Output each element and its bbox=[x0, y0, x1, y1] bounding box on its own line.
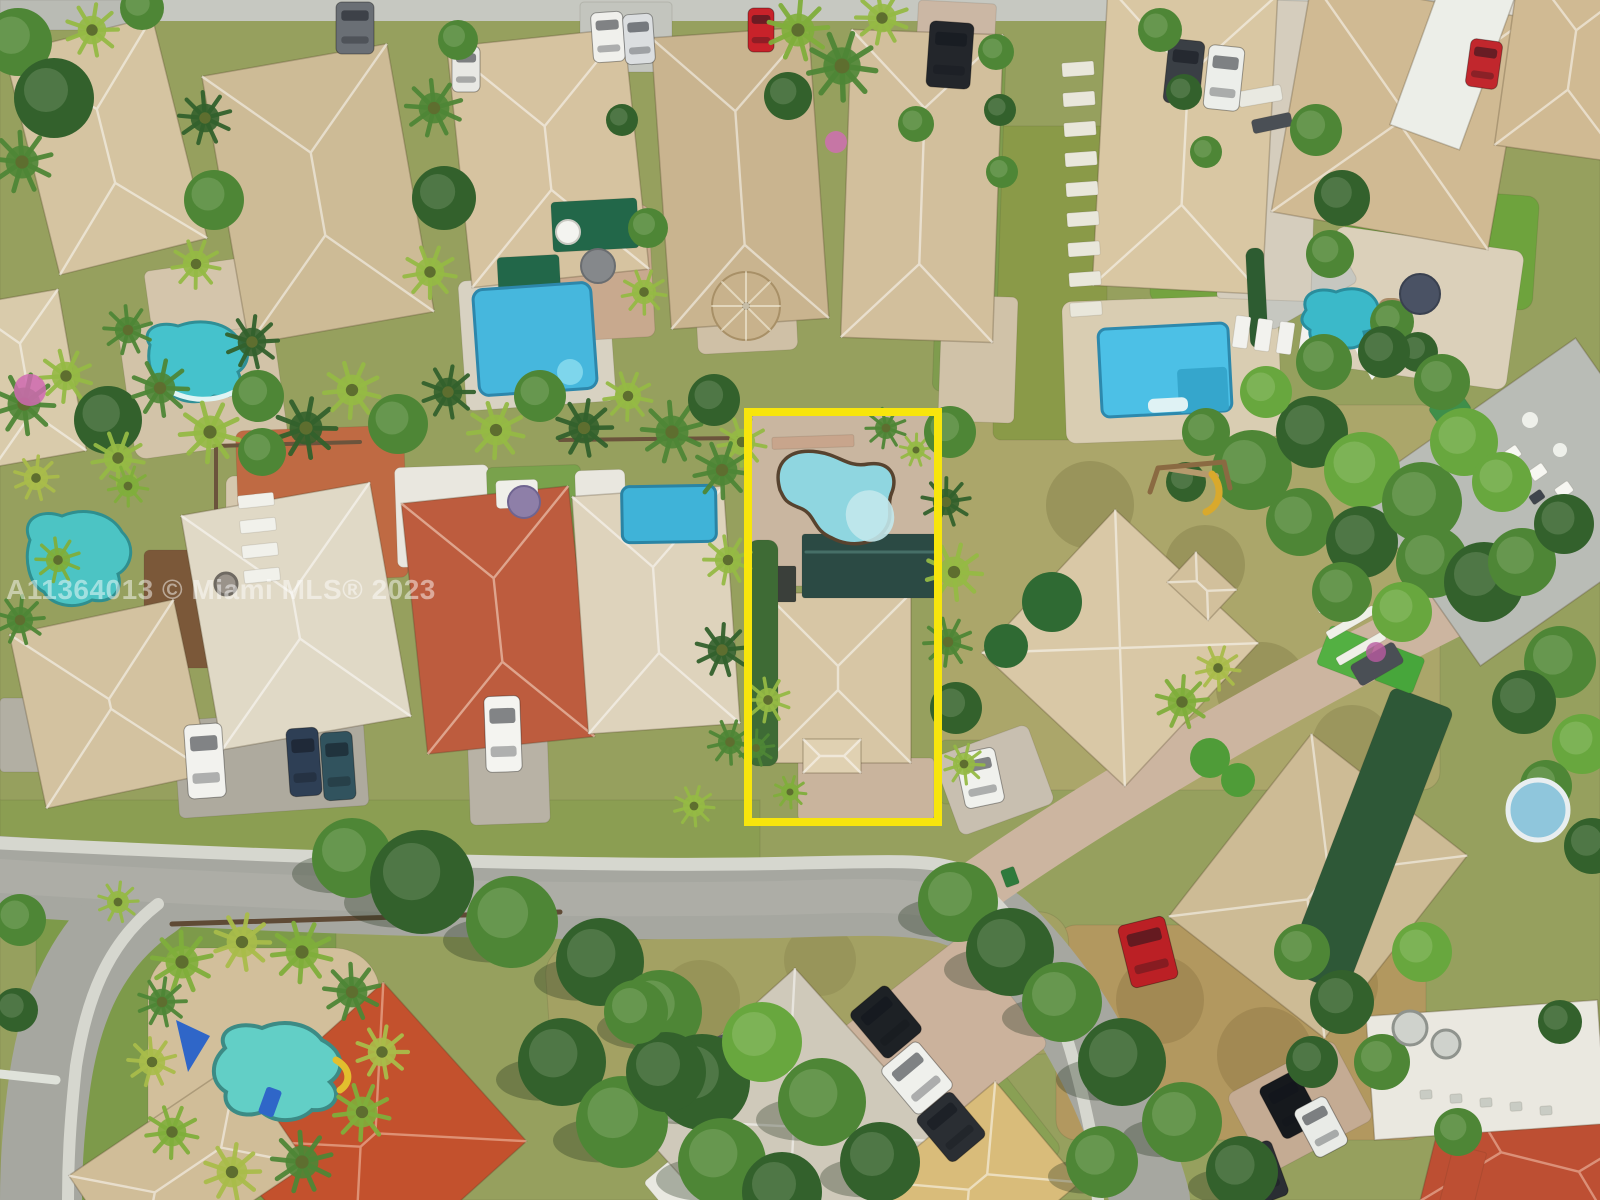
tree-hl-85 bbox=[1480, 460, 1513, 493]
tree-center-123 bbox=[226, 1166, 238, 1178]
tree-hl-14 bbox=[610, 108, 628, 126]
car-12 bbox=[484, 695, 523, 772]
tree-center-2 bbox=[15, 155, 28, 168]
tree-hl-94 bbox=[1560, 722, 1593, 755]
tree-hl-27 bbox=[1321, 177, 1352, 208]
tree-center-125 bbox=[147, 1057, 158, 1068]
paver-detail-6-4 bbox=[1540, 1106, 1553, 1116]
paver-detail-0-4 bbox=[1066, 181, 1099, 197]
tree-center-13 bbox=[639, 287, 649, 297]
tree-hl-105 bbox=[732, 1012, 776, 1056]
paver-detail-0-0 bbox=[1062, 61, 1095, 77]
car-2 bbox=[590, 11, 625, 63]
tree-hl-33 bbox=[83, 395, 120, 432]
tree-center-43 bbox=[578, 422, 590, 434]
detail-9 bbox=[215, 573, 237, 595]
tree-center-50 bbox=[112, 452, 123, 463]
tree-center-8 bbox=[428, 102, 440, 114]
car-10 bbox=[286, 727, 323, 797]
tree-hl-21 bbox=[988, 98, 1006, 116]
tree-hl-23 bbox=[1144, 14, 1168, 38]
tree-hl-114 bbox=[689, 1129, 737, 1177]
tree-center-67 bbox=[941, 497, 952, 508]
tree-center-40 bbox=[442, 386, 453, 397]
tree-hl-131 bbox=[1318, 978, 1353, 1013]
tree-hl-102 bbox=[529, 1029, 577, 1077]
tree-hl-103 bbox=[588, 1088, 639, 1139]
tree-hl-29 bbox=[1376, 306, 1400, 330]
paver-detail-0-7 bbox=[1069, 271, 1102, 287]
detail-4 bbox=[1508, 780, 1568, 840]
detail-6 bbox=[1432, 1030, 1460, 1058]
detail-12 bbox=[1022, 572, 1082, 632]
tree-hl-84 bbox=[1542, 502, 1575, 535]
mark-1 bbox=[712, 272, 780, 340]
tree-hl-86 bbox=[1421, 361, 1452, 392]
tree-center-68 bbox=[948, 566, 960, 578]
paver-detail-0-5 bbox=[1067, 211, 1100, 227]
tree-hl-79 bbox=[1405, 535, 1445, 575]
car-0 bbox=[336, 2, 374, 54]
tree-hl-42 bbox=[521, 377, 550, 406]
tree-center-65 bbox=[690, 802, 699, 811]
tree-center-120 bbox=[376, 1046, 387, 1057]
tree-hl-127 bbox=[1, 901, 30, 930]
tree-hl-108 bbox=[928, 872, 972, 916]
tree-hl-137 bbox=[1544, 1006, 1568, 1030]
tree-hl-22 bbox=[990, 160, 1008, 178]
tree-center-117 bbox=[236, 936, 248, 948]
detail-0 bbox=[581, 249, 615, 283]
tree-center-35 bbox=[203, 425, 216, 438]
paver-detail-6-1 bbox=[1450, 1094, 1463, 1104]
structure-4 bbox=[748, 540, 778, 766]
paved-32 bbox=[772, 435, 854, 450]
tree-hl-78 bbox=[1439, 417, 1476, 454]
tree-hl-140 bbox=[636, 1042, 680, 1086]
tree-hl-1 bbox=[24, 68, 68, 112]
tree-center-121 bbox=[356, 1106, 368, 1118]
tree-center-38 bbox=[346, 384, 358, 396]
detail-11 bbox=[1553, 443, 1567, 457]
tree-hl-9 bbox=[420, 174, 455, 209]
tree-center-49 bbox=[246, 336, 257, 347]
tree-center-32 bbox=[60, 370, 71, 381]
tree-hl-113 bbox=[1215, 1145, 1255, 1185]
tree-center-139 bbox=[1213, 663, 1223, 673]
tree-center-58 bbox=[716, 644, 727, 655]
house-4 bbox=[841, 29, 1004, 342]
detail-16 bbox=[14, 374, 46, 406]
detail-13 bbox=[984, 624, 1028, 668]
car-3 bbox=[622, 13, 655, 65]
tree-hl-100 bbox=[567, 929, 615, 977]
tree-center-44 bbox=[623, 391, 634, 402]
detail-15 bbox=[1221, 763, 1255, 797]
tree-center-56 bbox=[716, 464, 728, 476]
tree-center-116 bbox=[175, 955, 188, 968]
tree-hl-83 bbox=[1497, 537, 1534, 574]
tree-hl-87 bbox=[1365, 333, 1394, 362]
car-7 bbox=[1203, 44, 1245, 111]
tree-center-10 bbox=[424, 266, 435, 277]
tree-center-34 bbox=[154, 382, 166, 394]
tree-center-55 bbox=[15, 615, 26, 626]
tree-hl-89 bbox=[1247, 373, 1276, 402]
tree-center-17 bbox=[876, 12, 887, 23]
mark-0 bbox=[0, 1074, 56, 1080]
pool-11 bbox=[622, 485, 717, 543]
tree-hl-81 bbox=[1380, 590, 1413, 623]
detail-5 bbox=[1393, 1011, 1427, 1045]
car-8 bbox=[1465, 38, 1503, 90]
tree-hl-75 bbox=[1275, 497, 1312, 534]
tree-hl-11 bbox=[443, 25, 465, 47]
tree-center-60 bbox=[763, 695, 773, 705]
tree-center-122 bbox=[295, 1155, 308, 1168]
tree-center-69 bbox=[943, 637, 954, 648]
tree-hl-92 bbox=[1533, 635, 1573, 675]
tree-hl-132 bbox=[1281, 931, 1312, 962]
tree-hl-128 bbox=[0, 994, 24, 1018]
tree-hl-141 bbox=[612, 988, 647, 1023]
tree-hl-36 bbox=[239, 377, 268, 406]
paver-detail-0-6 bbox=[1068, 241, 1101, 257]
tree-center-57 bbox=[723, 555, 734, 566]
tree-hl-134 bbox=[1361, 1041, 1392, 1072]
pool-6 bbox=[1148, 397, 1189, 413]
detail-1 bbox=[556, 220, 580, 244]
house-25 bbox=[9, 599, 210, 808]
tree-hl-93 bbox=[1500, 678, 1535, 713]
tree-hl-99 bbox=[478, 888, 529, 939]
tree-center-45 bbox=[665, 425, 678, 438]
tree-hl-46 bbox=[695, 381, 724, 410]
tree-hl-28 bbox=[1312, 236, 1338, 262]
aerial-photo-scene bbox=[0, 0, 1600, 1200]
tree-center-126 bbox=[157, 997, 168, 1008]
car-4 bbox=[748, 8, 774, 52]
tree-center-118 bbox=[295, 945, 308, 958]
structure-2 bbox=[802, 534, 938, 598]
tree-hl-97 bbox=[322, 828, 366, 872]
tree-hl-19 bbox=[903, 111, 923, 131]
tree-center-41 bbox=[490, 424, 502, 436]
tree-hl-6 bbox=[192, 178, 225, 211]
house-12 bbox=[765, 593, 911, 763]
tree-hl-130 bbox=[1075, 1135, 1115, 1175]
tree-center-52 bbox=[31, 473, 41, 483]
paver-detail-6-3 bbox=[1510, 1102, 1523, 1112]
tree-hl-24 bbox=[1171, 79, 1191, 99]
tree-hl-77 bbox=[1392, 472, 1436, 516]
tree-hl-74 bbox=[1334, 442, 1376, 484]
tree-hl-51 bbox=[244, 434, 270, 460]
tree-hl-39 bbox=[376, 402, 409, 435]
tree-center-64 bbox=[912, 446, 919, 453]
tree-hl-135 bbox=[1293, 1043, 1322, 1072]
tree-center-53 bbox=[124, 482, 133, 491]
tree-hl-109 bbox=[977, 919, 1025, 967]
tree-hl-76 bbox=[1335, 515, 1375, 555]
tree-hl-26 bbox=[1297, 111, 1326, 140]
detail-18 bbox=[1366, 642, 1386, 662]
tree-center-63 bbox=[882, 424, 891, 433]
tree-center-7 bbox=[191, 259, 202, 270]
tree-center-5 bbox=[199, 112, 210, 123]
tree-center-37 bbox=[299, 421, 312, 434]
tree-center-3 bbox=[86, 24, 97, 35]
tree-hl-20 bbox=[983, 39, 1003, 59]
car-9 bbox=[183, 723, 226, 799]
detail-10 bbox=[1522, 412, 1538, 428]
tree-hl-12 bbox=[633, 213, 655, 235]
tree-hl-82 bbox=[1320, 570, 1353, 603]
tree-hl-110 bbox=[1032, 972, 1076, 1016]
tree-hl-107 bbox=[850, 1132, 894, 1176]
car-11 bbox=[320, 731, 357, 801]
paver-detail-0-3 bbox=[1065, 151, 1098, 167]
tree-center-124 bbox=[166, 1126, 177, 1137]
tree-hl-18 bbox=[770, 78, 796, 104]
tree-center-71 bbox=[960, 760, 969, 769]
tree-center-48 bbox=[123, 325, 134, 336]
aerial-listing-photo: A11364013 © Miami MLS® 2023 bbox=[0, 0, 1600, 1200]
tree-hl-25 bbox=[1194, 140, 1212, 158]
tree-hl-136 bbox=[1440, 1114, 1466, 1140]
tree-hl-106 bbox=[789, 1069, 837, 1117]
tree-hl-90 bbox=[1188, 414, 1214, 440]
house-9 bbox=[181, 482, 411, 750]
tree-center-54 bbox=[53, 555, 63, 565]
tree-center-119 bbox=[346, 986, 358, 998]
tree-center-16 bbox=[835, 59, 850, 74]
paver-detail-0-1 bbox=[1063, 91, 1096, 107]
tree-center-59 bbox=[725, 737, 735, 747]
tree-hl-111 bbox=[1089, 1029, 1137, 1077]
paver-detail-0-2 bbox=[1064, 121, 1097, 137]
paver-detail-0-8 bbox=[1070, 301, 1103, 317]
house-13 bbox=[803, 739, 861, 773]
car-5 bbox=[926, 21, 974, 90]
detail-2 bbox=[508, 486, 540, 518]
paver-detail-6-2 bbox=[1480, 1098, 1493, 1108]
tree-center-129 bbox=[114, 898, 123, 907]
tree-center-61 bbox=[752, 744, 760, 752]
tree-center-15 bbox=[791, 23, 804, 36]
tree-hl-133 bbox=[1400, 930, 1433, 963]
tree-hl-73 bbox=[1285, 405, 1325, 445]
tree-hl-98 bbox=[383, 843, 440, 900]
paver-detail-6-0 bbox=[1420, 1090, 1433, 1100]
tree-hl-88 bbox=[1303, 341, 1334, 372]
detail-17 bbox=[825, 131, 847, 153]
tree-center-138 bbox=[1176, 696, 1187, 707]
tree-hl-112 bbox=[1152, 1092, 1196, 1136]
tree-center-62 bbox=[786, 788, 793, 795]
detail-3 bbox=[1400, 274, 1440, 314]
